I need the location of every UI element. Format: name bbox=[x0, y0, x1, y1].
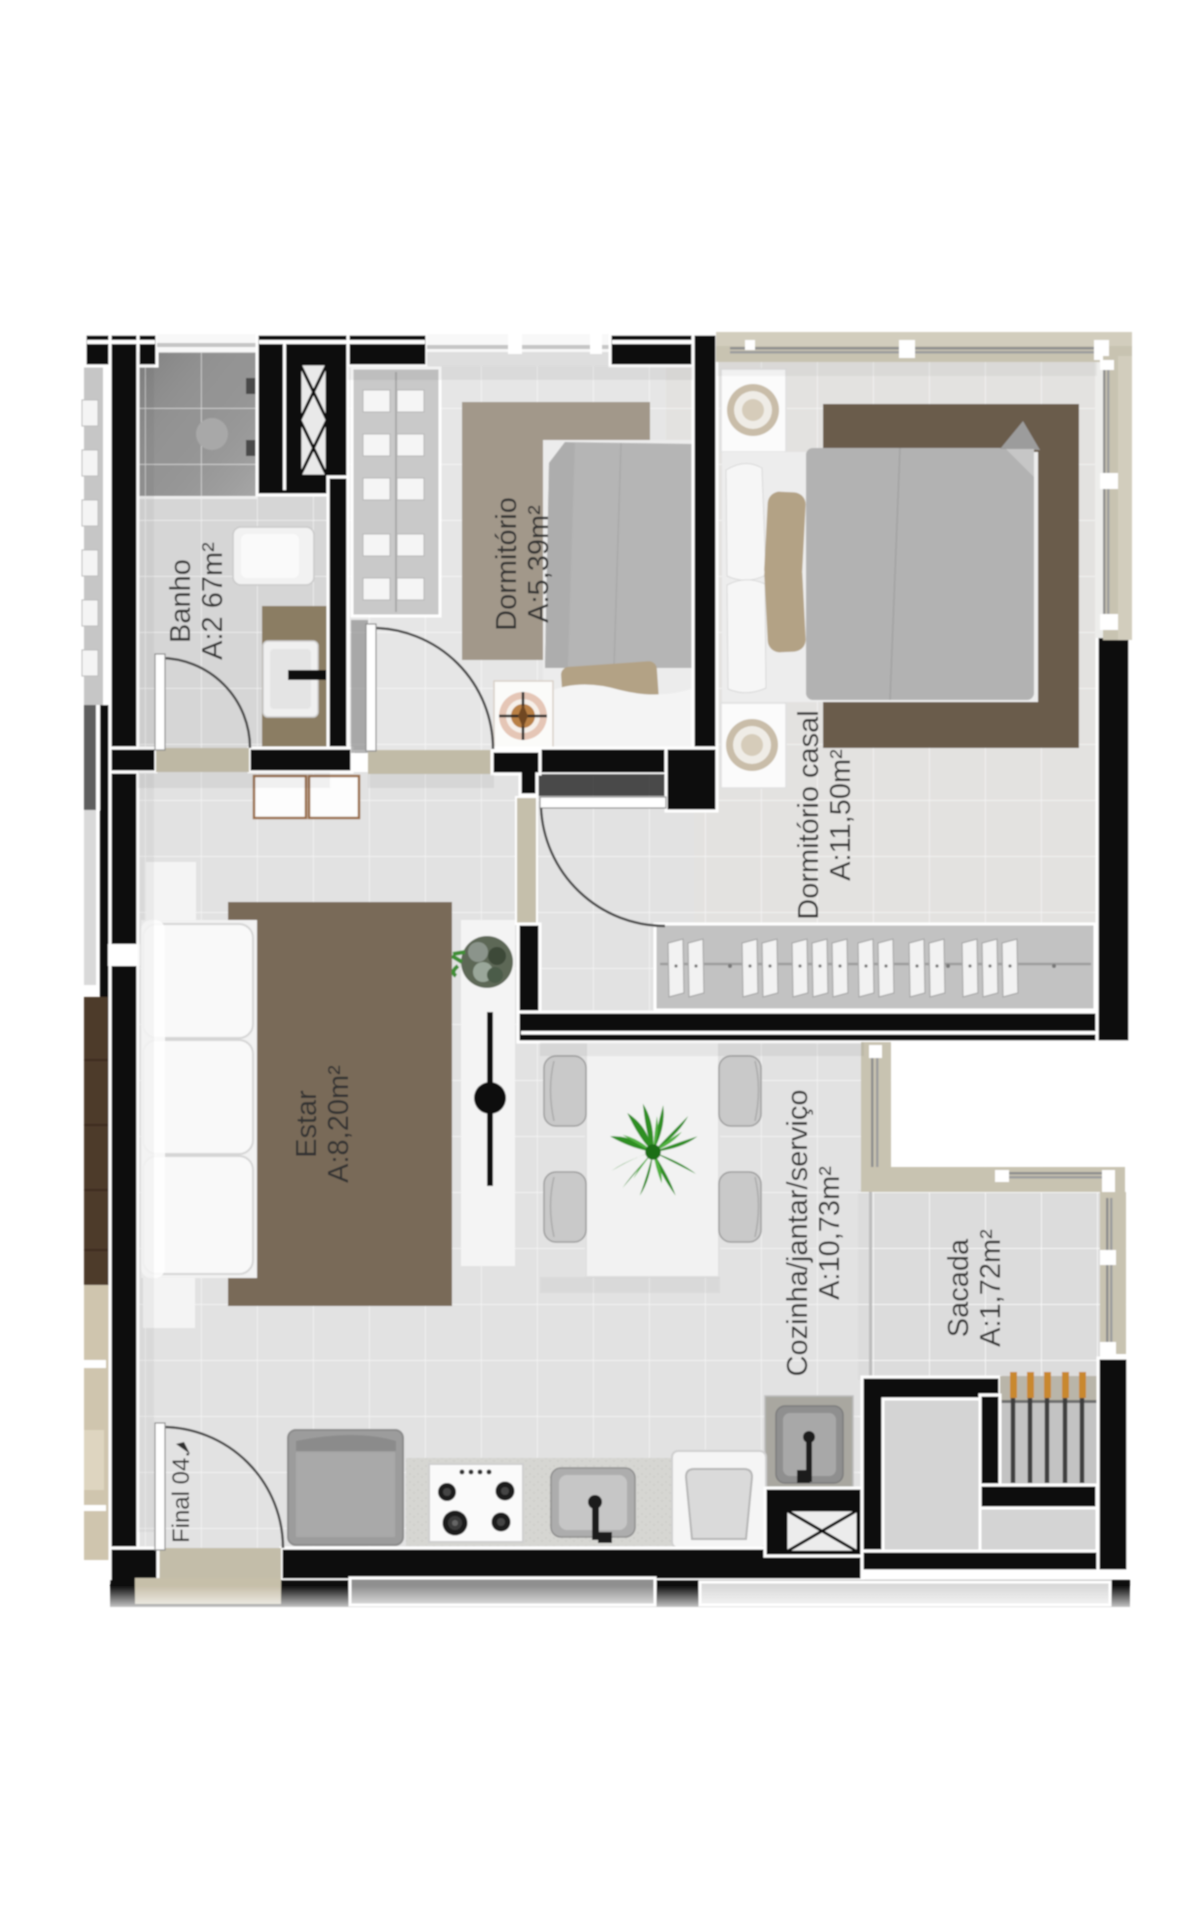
svg-text:Final 04.: Final 04. bbox=[168, 1451, 195, 1543]
svg-text:DormitórioA:5,39m²: DormitórioA:5,39m² bbox=[491, 497, 555, 631]
svg-text:BanhoA:2 67m²: BanhoA:2 67m² bbox=[165, 542, 229, 660]
svg-text:SacadaA:1,72m²: SacadaA:1,72m² bbox=[943, 1229, 1007, 1347]
